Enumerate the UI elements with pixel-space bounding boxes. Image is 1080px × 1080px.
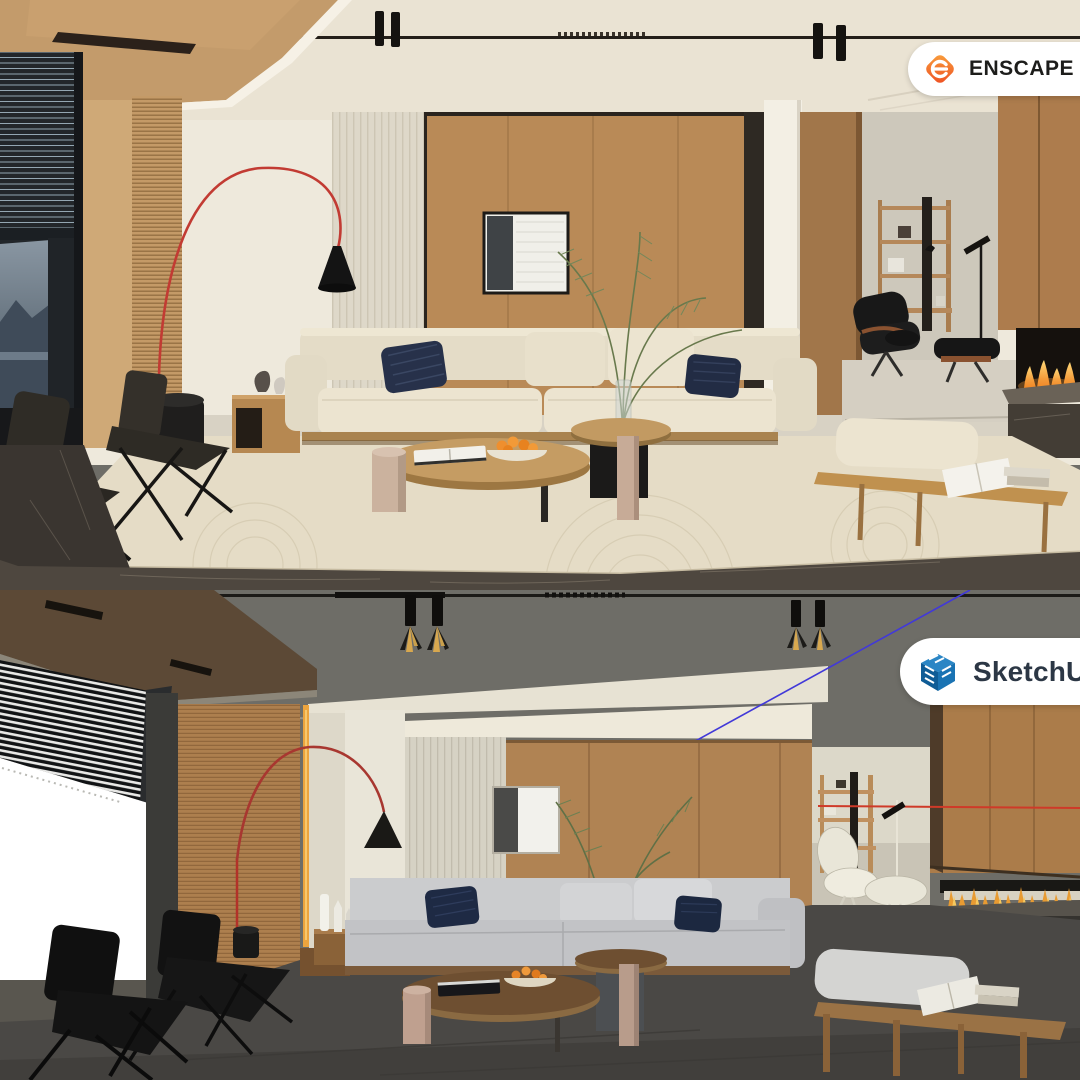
- framed-artwork: [484, 213, 568, 293]
- navy-pillow-left: [380, 340, 448, 394]
- eames-platform: [842, 360, 1020, 422]
- gray-sofa: [345, 878, 805, 975]
- shelf-black-strip: [922, 197, 932, 331]
- framed-artwork: [492, 786, 560, 854]
- sketchup-badge: SketchUp: [900, 638, 1080, 705]
- enscape-badge-label: ENSCAPE: [969, 57, 1074, 81]
- hanging-wood-cabinet: [998, 85, 1080, 330]
- black-pot: [233, 930, 259, 958]
- navy-pillow-left: [424, 885, 480, 928]
- hanging-wood-cabinet: [930, 703, 1080, 877]
- navy-pillow-right: [684, 353, 742, 398]
- sketchup-badge-label: SketchUp: [973, 656, 1080, 688]
- enscape-badge: ENSCAPE™: [908, 42, 1080, 96]
- sketchup-logo-icon: [915, 649, 961, 695]
- window-blinds: [0, 52, 76, 244]
- navy-pillow-right: [674, 895, 723, 933]
- render-comparison-image: ENSCAPE™ SketchUp: [0, 0, 1080, 1080]
- bench-cushion: [835, 418, 979, 471]
- enscape-logo-icon: [921, 50, 959, 88]
- ceiling-track: [300, 36, 1080, 39]
- eames-ottoman: [934, 338, 1000, 359]
